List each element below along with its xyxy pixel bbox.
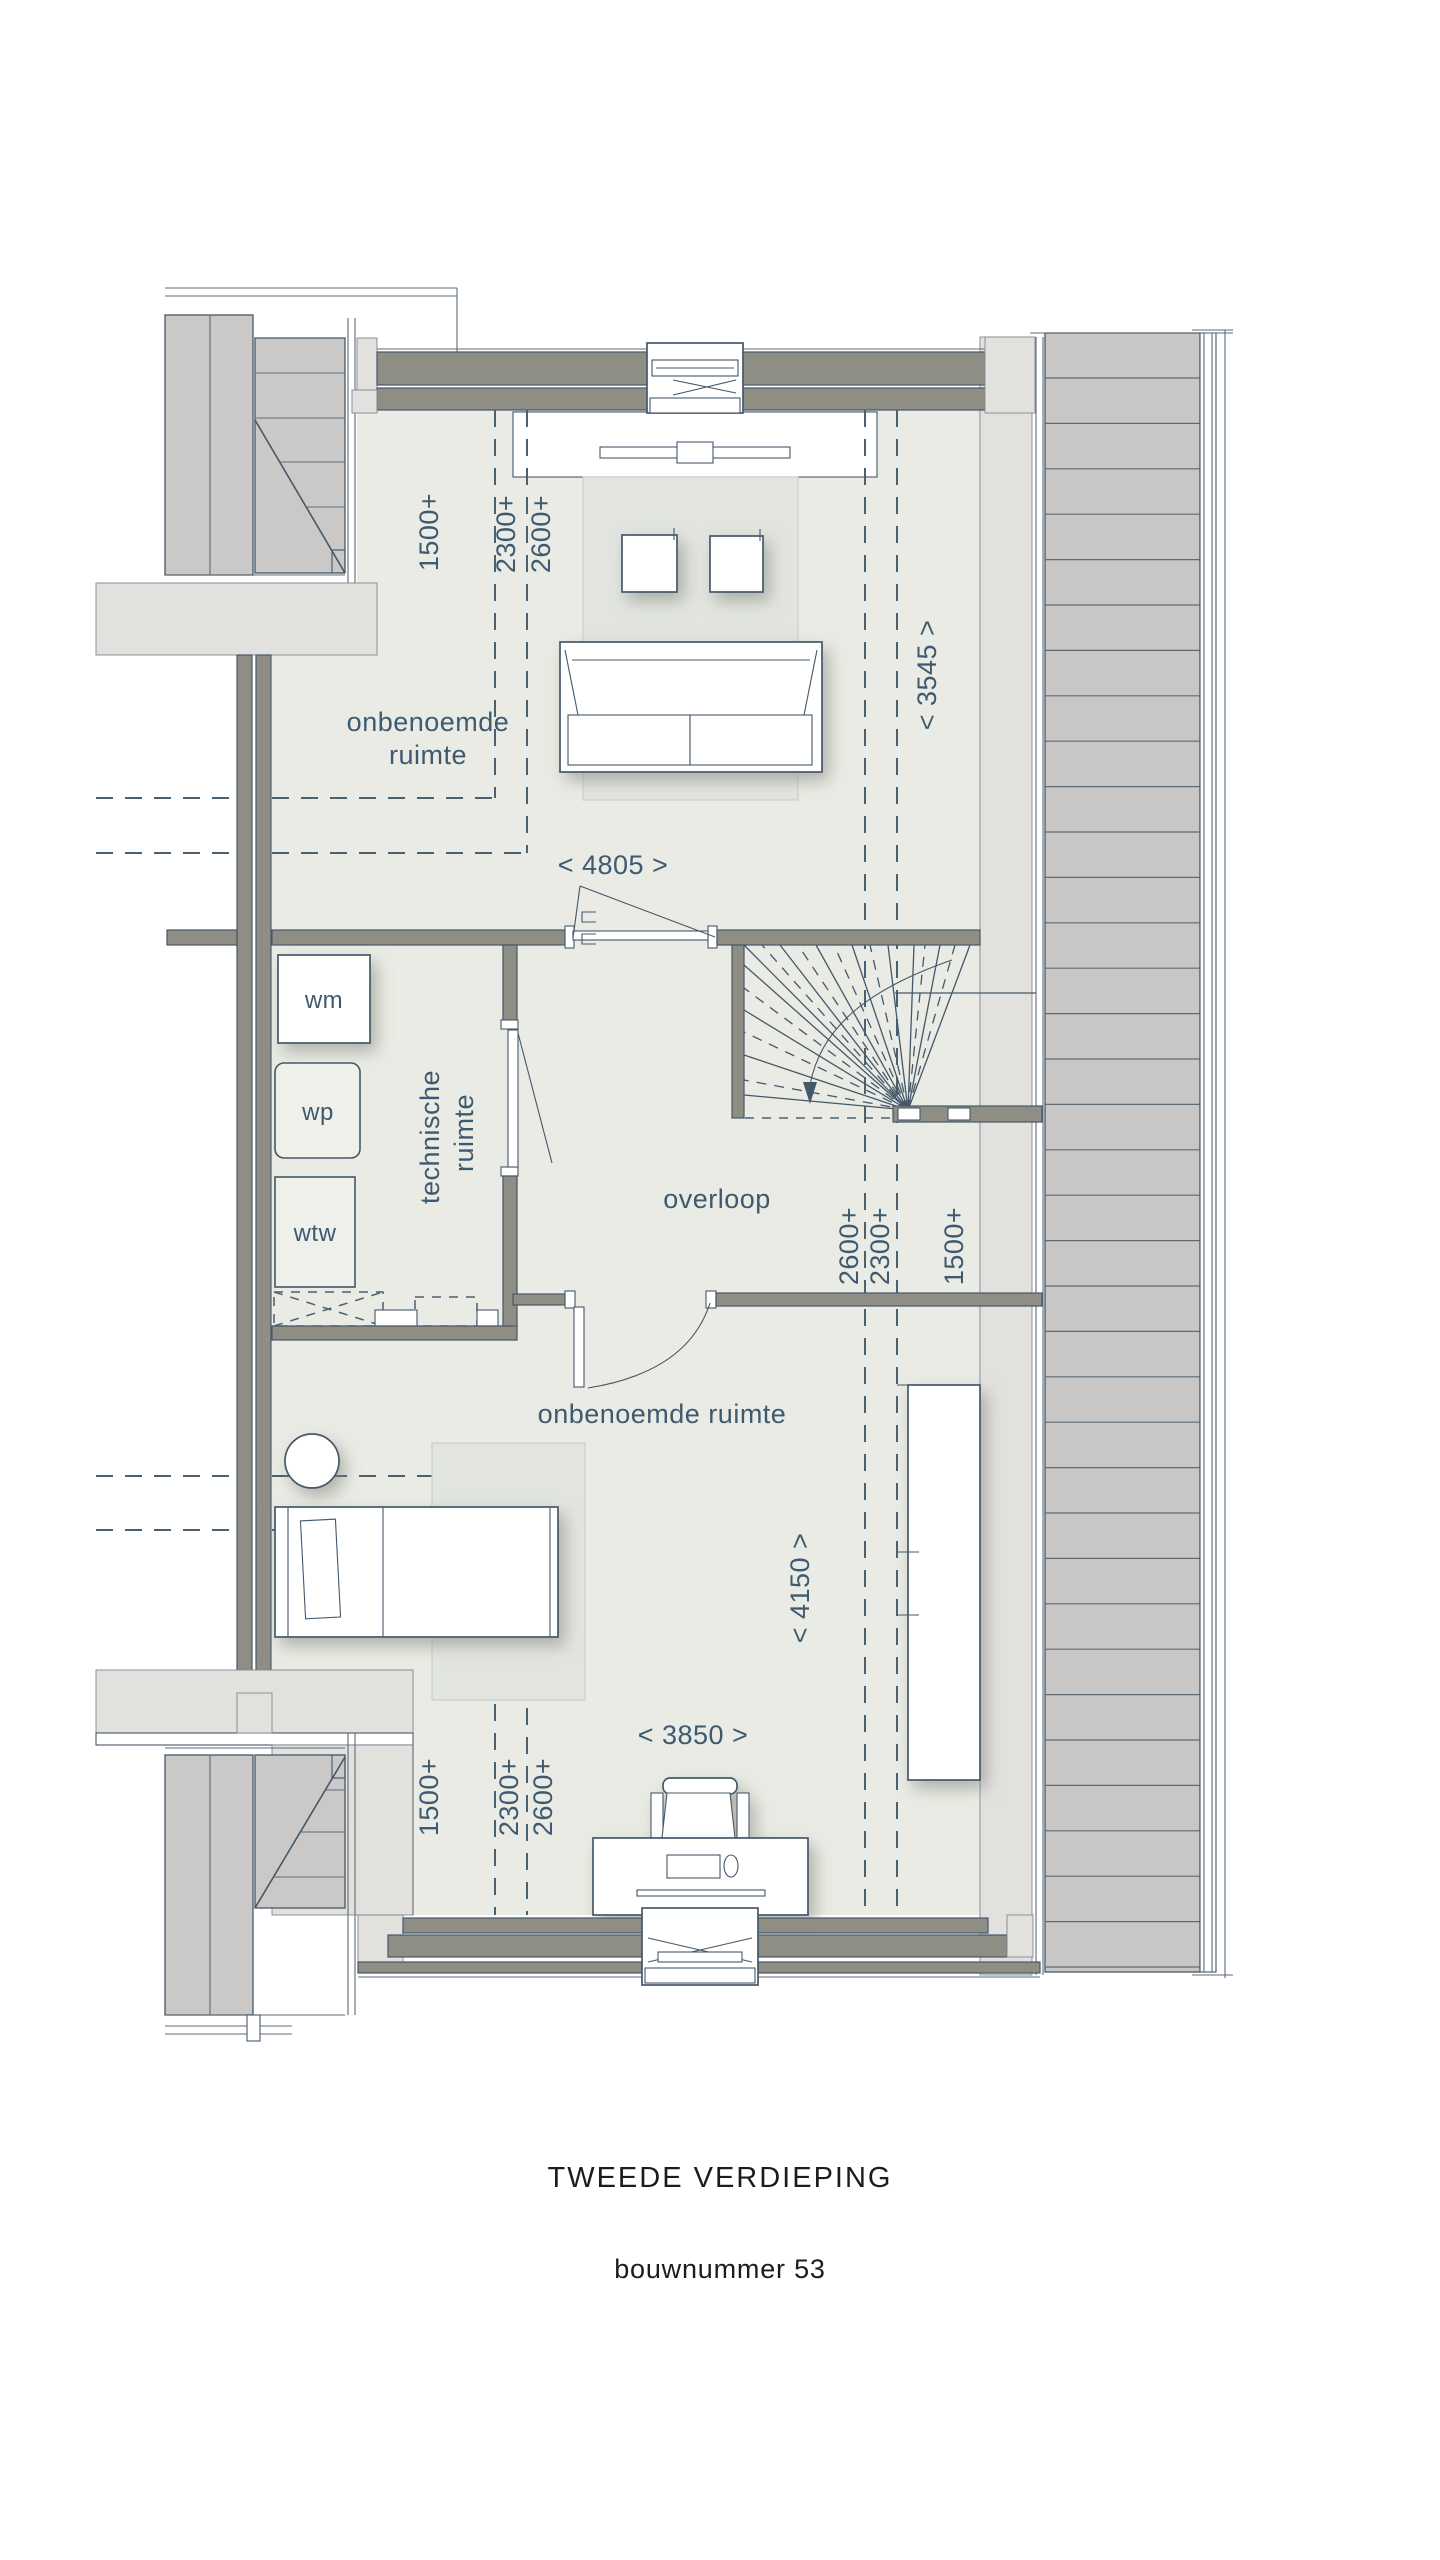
label-heat-recovery: wtw bbox=[293, 1220, 337, 1247]
sofa bbox=[560, 642, 822, 772]
dim-bottom-2300: 2300+ bbox=[494, 1758, 524, 1836]
title-block: TWEEDE VERDIEPING bouwnummer 53 bbox=[548, 2162, 893, 2284]
dim-top-room-depth: < 3545 > bbox=[912, 620, 942, 731]
dim-top-2600: 2600+ bbox=[526, 495, 556, 573]
dim-landing-2600: 2600+ bbox=[834, 1207, 864, 1285]
dim-top-1500: 1500+ bbox=[414, 493, 444, 571]
desk bbox=[593, 1838, 808, 1915]
dim-top-2300: 2300+ bbox=[491, 495, 521, 573]
dim-bottom-room-width: < 3850 > bbox=[638, 1720, 749, 1750]
label-top-room-line1: onbenoemde bbox=[347, 707, 510, 737]
label-technical-room-line2: ruimte bbox=[449, 1094, 479, 1172]
dim-landing-2300: 2300+ bbox=[865, 1207, 895, 1285]
round-side-table bbox=[285, 1434, 339, 1488]
side-table-left bbox=[622, 528, 677, 592]
bottom-window bbox=[642, 1908, 758, 1985]
label-heat-pump: wp bbox=[301, 1099, 334, 1126]
floor-plan-drawing: onbenoemde ruimte 1500+ 2300+ 2600+ < 35… bbox=[0, 0, 1440, 2560]
floor-plan-page: onbenoemde ruimte 1500+ 2300+ 2600+ < 35… bbox=[0, 0, 1440, 2560]
label-technical-room-line1: technische bbox=[415, 1070, 445, 1204]
dim-landing-1500: 1500+ bbox=[939, 1207, 969, 1285]
neighbour-roof-bottom bbox=[165, 1733, 355, 2041]
dim-top-room-width: < 4805 > bbox=[558, 850, 669, 880]
bed bbox=[275, 1507, 558, 1637]
label-bottom-room: onbenoemde ruimte bbox=[538, 1399, 787, 1429]
build-number: bouwnummer 53 bbox=[614, 2254, 826, 2284]
top-window bbox=[647, 343, 743, 413]
label-top-room-line2: ruimte bbox=[389, 740, 467, 770]
floor-title: TWEEDE VERDIEPING bbox=[548, 2162, 893, 2194]
label-washing-machine: wm bbox=[304, 987, 343, 1014]
label-landing: overloop bbox=[663, 1184, 771, 1214]
wardrobe bbox=[897, 1385, 980, 1780]
side-table-right bbox=[710, 529, 763, 592]
roof-right bbox=[980, 330, 1233, 1978]
dim-bottom-1500: 1500+ bbox=[414, 1758, 444, 1836]
dim-bottom-2600: 2600+ bbox=[528, 1758, 558, 1836]
dim-bottom-room-depth: < 4150 > bbox=[785, 1533, 815, 1644]
